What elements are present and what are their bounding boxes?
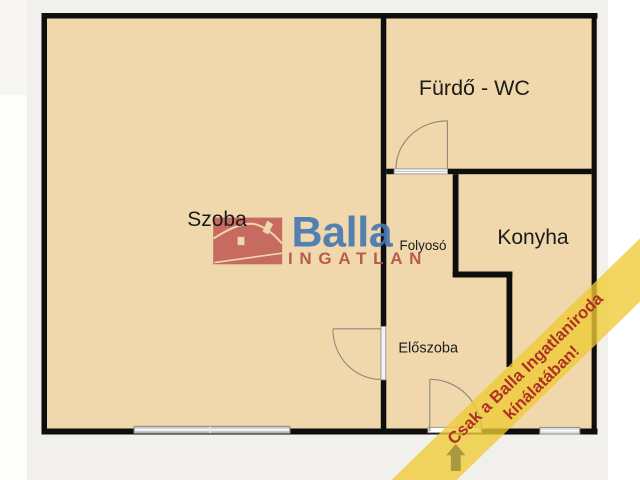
svg-text:Szoba: Szoba bbox=[187, 208, 247, 231]
svg-text:Konyha: Konyha bbox=[497, 226, 569, 249]
svg-text:INGATLAN: INGATLAN bbox=[288, 249, 428, 268]
svg-text:Előszoba: Előszoba bbox=[398, 341, 459, 357]
svg-text:Fürdő - WC: Fürdő - WC bbox=[419, 76, 530, 100]
